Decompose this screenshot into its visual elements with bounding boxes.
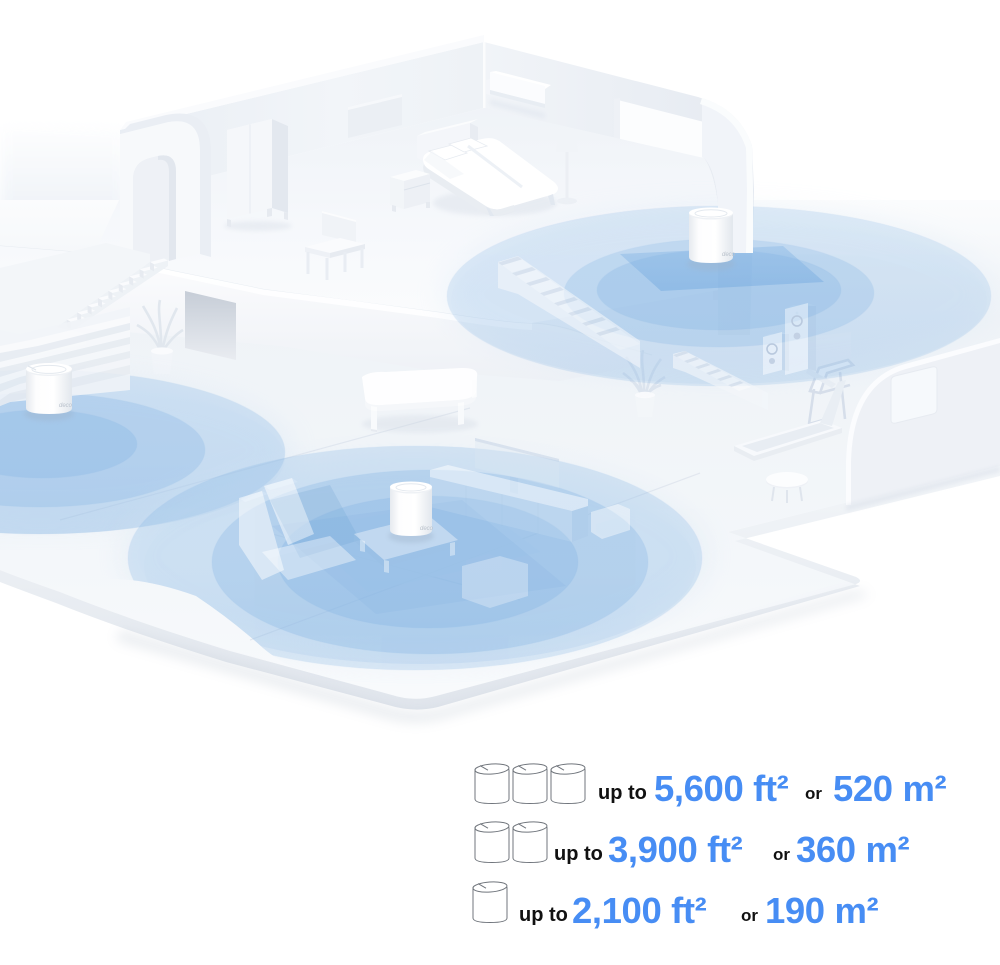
svg-text:up to: up to [598,782,647,804]
svg-text:up to: up to [554,843,603,865]
svg-text:deco: deco [59,403,73,409]
svg-text:or: or [805,784,822,803]
svg-text:or: or [741,906,758,925]
svg-text:5,600 ft²: 5,600 ft² [654,768,789,809]
svg-text:520 m²: 520 m² [833,768,946,809]
svg-text:3,900 ft²: 3,900 ft² [608,829,743,870]
svg-text:up to: up to [519,904,568,926]
svg-text:or: or [773,845,790,864]
svg-text:190 m²: 190 m² [765,890,878,931]
svg-text:2,100 ft²: 2,100 ft² [572,890,707,931]
svg-text:360 m²: 360 m² [796,829,909,870]
svg-text:deco: deco [420,526,434,532]
svg-text:deco: deco [722,252,736,258]
